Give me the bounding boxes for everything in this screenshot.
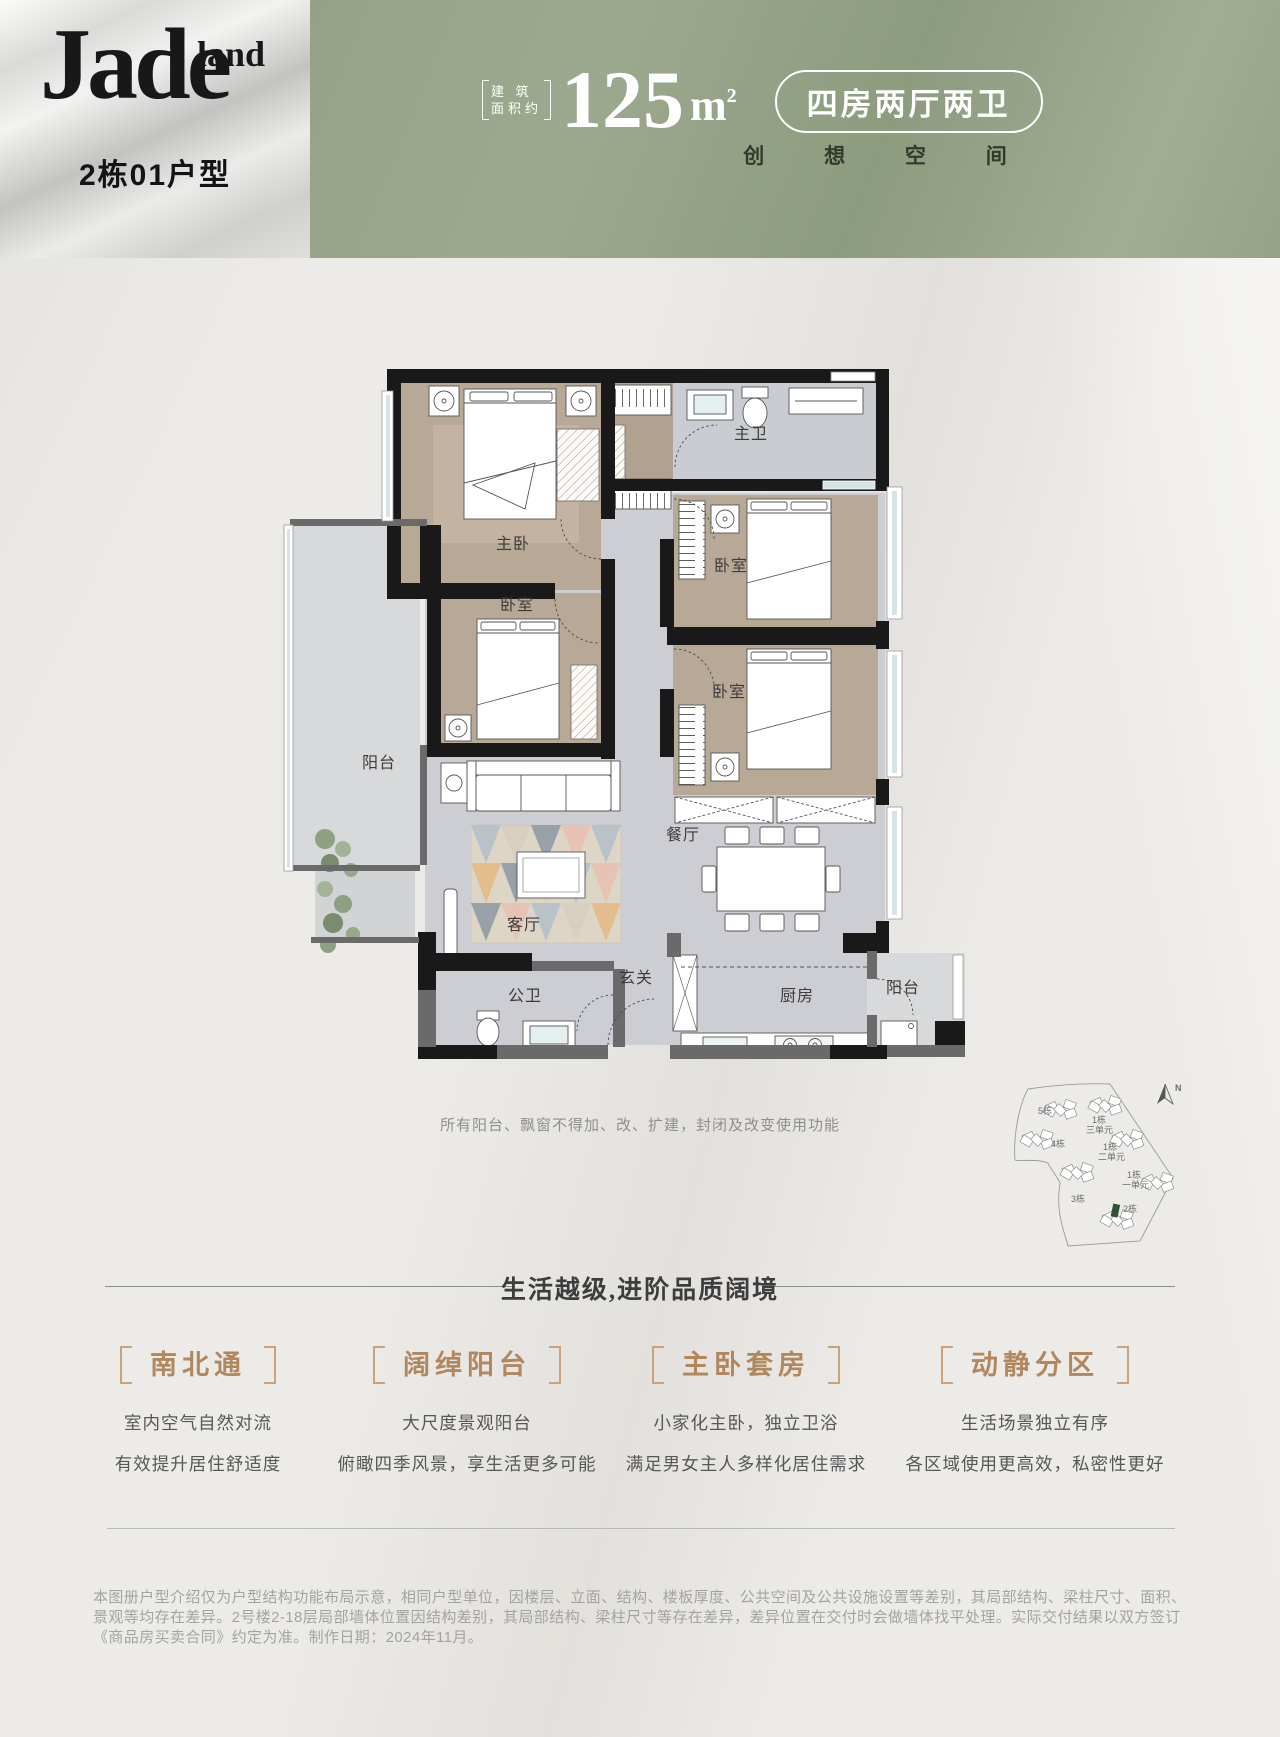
feature-line1: 大尺度景观阳台 (307, 1410, 627, 1435)
site-label-building-4: 4栋 (1051, 1138, 1065, 1149)
disclaimer-text: 本图册户型介绍仅为户型结构功能布局示意，相同户型单位，因楼层、立面、结构、楼板厚… (93, 1588, 1191, 1648)
site-plan-container: N 5栋 1栋 三单元 4栋 1栋 二单元 3栋 1栋 一单元 2栋 (1005, 1078, 1235, 1263)
room-label-kitchen: 厨房 (780, 987, 814, 1005)
feature-title-row: 阔绰阳台 (307, 1346, 627, 1384)
feature-line2: 有效提升居住舒适度 (58, 1451, 338, 1476)
corner-bracket-left-icon (652, 1346, 664, 1384)
feature-title: 主卧套房 (682, 1346, 810, 1384)
floor-plan-container: 主卧 卧室 阳台 客厅 餐厅 主卫 卧室 卧室 玄关 公卫 厨房 阳台 (283, 333, 973, 1078)
site-label-building-1-unit3-l2: 三单元 (1086, 1124, 1113, 1135)
brochure-page: 建 筑 面积约 125 m2 四房两厅两卫 创 想 空 间 Jade land … (0, 0, 1280, 1737)
slogan-heading: 生活越级,进阶品质阔境 (0, 1270, 1280, 1306)
logo-land: land (197, 36, 265, 72)
site-label-building-5: 5栋 (1038, 1105, 1052, 1116)
north-label: N (1175, 1083, 1182, 1093)
corner-bracket-left-icon (941, 1346, 953, 1384)
feature-title: 动静分区 (971, 1346, 1099, 1384)
room-label-bedroom-right-lower: 卧室 (712, 683, 746, 701)
tagline: 创 想 空 间 (655, 140, 1095, 170)
corner-bracket-left-icon (120, 1346, 132, 1384)
area-prefix-line2: 面积约 (491, 100, 542, 117)
site-label-building-1-unit1-l1: 1栋 (1127, 1169, 1141, 1180)
feature-line1: 小家化主卧，独立卫浴 (581, 1410, 911, 1435)
feature-title-row: 南北通 (58, 1346, 338, 1384)
area-unit-letter: m (690, 81, 727, 130)
site-labels: 5栋 1栋 三单元 4栋 1栋 二单元 3栋 1栋 一单元 2栋 (1038, 1105, 1149, 1214)
room-label-bedroom-left: 卧室 (500, 596, 534, 614)
feature-title: 阔绰阳台 (403, 1346, 531, 1384)
slogan-section: 生活越级,进阶品质阔境 (0, 1270, 1280, 1304)
area-prefix-label: 建 筑 面积约 (482, 80, 551, 120)
site-label-building-1-unit2-l1: 1栋 (1103, 1141, 1117, 1152)
feature-line2: 满足男女主人多样化居住需求 (581, 1451, 911, 1476)
room-label-master-bedroom: 主卧 (496, 535, 530, 553)
feature-title-row: 主卧套房 (581, 1346, 911, 1384)
site-label-building-1-unit3-l1: 1栋 (1092, 1114, 1106, 1125)
corner-bracket-right-icon (1117, 1346, 1129, 1384)
corner-bracket-right-icon (828, 1346, 840, 1384)
site-label-building-2: 2栋 (1123, 1203, 1137, 1214)
feature-line2: 各区域使用更高效，私密性更好 (870, 1451, 1200, 1476)
area-unit: m2 (690, 84, 737, 128)
area-group: 建 筑 面积约 125 m2 四房两厅两卫 (482, 62, 1043, 138)
corner-bracket-right-icon (264, 1346, 276, 1384)
feature-card-master-suite: 主卧套房 小家化主卧，独立卫浴 满足男女主人多样化居住需求 (581, 1346, 911, 1476)
unit-type-label: 2栋01户型 (0, 150, 310, 194)
room-label-living-room: 客厅 (507, 916, 541, 934)
site-plan: N 5栋 1栋 三单元 4栋 1栋 二单元 3栋 1栋 一单元 2栋 (1005, 1078, 1235, 1263)
current-building-marker (1111, 1204, 1121, 1218)
feature-card-balcony: 阔绰阳台 大尺度景观阳台 俯瞰四季风景，享生活更多可能 (307, 1346, 627, 1476)
feature-line1: 室内空气自然对流 (58, 1410, 338, 1435)
room-label-foyer: 玄关 (619, 969, 653, 987)
corner-bracket-left-icon (373, 1346, 385, 1384)
footer-divider (107, 1528, 1175, 1529)
feature-card-north-south: 南北通 室内空气自然对流 有效提升居住舒适度 (58, 1346, 338, 1476)
feature-card-zoning: 动静分区 生活场景独立有序 各区域使用更高效，私密性更好 (870, 1346, 1200, 1476)
floor-plan: 主卧 卧室 阳台 客厅 餐厅 主卫 卧室 卧室 玄关 公卫 厨房 阳台 (283, 333, 973, 1078)
room-label-master-bathroom: 主卫 (734, 425, 768, 443)
area-unit-sup: 2 (727, 85, 737, 107)
room-label-balcony-right: 阳台 (886, 979, 920, 997)
layout-badge: 四房两厅两卫 (775, 70, 1043, 133)
logo-block: Jade land 2栋01户型 (0, 0, 310, 258)
corner-bracket-right-icon (549, 1346, 561, 1384)
site-label-building-1-unit2-l2: 二单元 (1098, 1151, 1125, 1162)
area-value: 125 (561, 62, 684, 138)
site-label-building-3: 3栋 (1071, 1193, 1085, 1204)
room-label-bedroom-right-upper: 卧室 (714, 557, 748, 575)
feature-title-row: 动静分区 (870, 1346, 1200, 1384)
feature-line1: 生活场景独立有序 (870, 1410, 1200, 1435)
north-arrow-icon: N (1157, 1083, 1182, 1104)
room-label-balcony-left: 阳台 (362, 754, 396, 772)
room-label-guest-bathroom: 公卫 (508, 988, 542, 1005)
feature-line2: 俯瞰四季风景，享生活更多可能 (307, 1451, 627, 1476)
site-label-building-1-unit1-l2: 一单元 (1122, 1179, 1149, 1190)
area-prefix-line1: 建 筑 (491, 83, 542, 100)
feature-title: 南北通 (150, 1346, 246, 1384)
room-label-dining-room: 餐厅 (666, 826, 700, 844)
